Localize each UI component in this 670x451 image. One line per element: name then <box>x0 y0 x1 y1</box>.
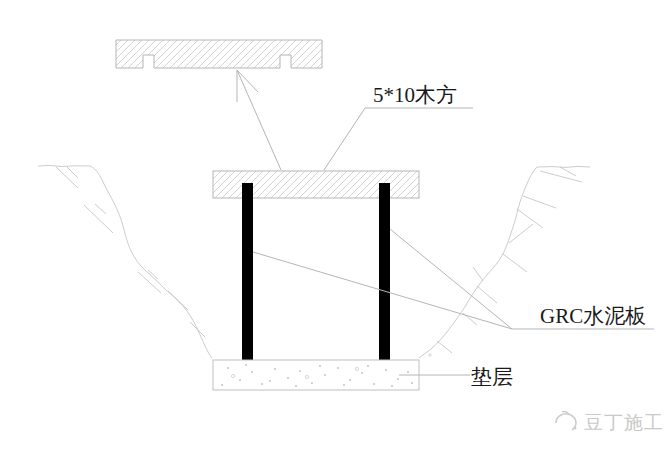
wood-beam-leader-line <box>324 108 473 170</box>
top-plate-section <box>116 40 322 68</box>
cushion-label: 垫层 <box>471 365 513 389</box>
grc-board-left <box>242 183 253 363</box>
grc-board-right <box>379 183 390 363</box>
grc-board-callout: GRC水泥板 <box>253 229 654 329</box>
excavation-slope-left <box>38 165 212 358</box>
wood-beam-callout: 5*10木方 <box>324 83 473 170</box>
wood-beam-label: 5*10木方 <box>373 83 457 107</box>
construction-detail-diagram: 5*10木方 GRC水泥板 垫层 豆丁施工 <box>0 0 670 451</box>
grc-leader-line-right <box>390 229 512 329</box>
grc-board-label: GRC水泥板 <box>540 304 646 328</box>
watermark: 豆丁施工 <box>556 411 664 433</box>
technical-drawing-canvas: 5*10木方 GRC水泥板 垫层 豆丁施工 <box>0 0 670 451</box>
top-plate-leader-arrow <box>237 70 281 170</box>
watermark-brand-text: 豆丁施工 <box>584 412 664 433</box>
watermark-logo-icon <box>556 411 576 430</box>
